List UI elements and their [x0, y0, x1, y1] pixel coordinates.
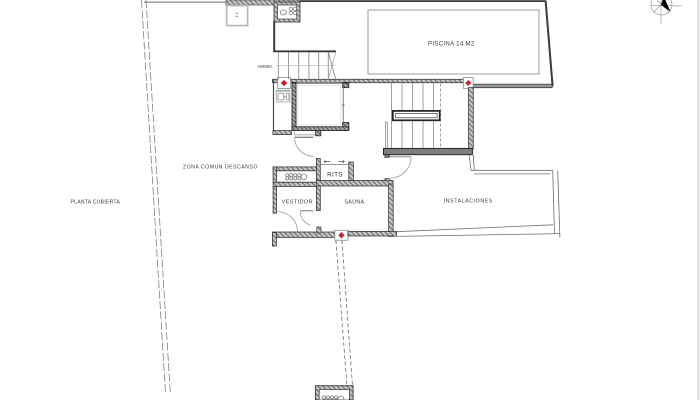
svg-text:INSTALACIONES: INSTALACIONES — [444, 199, 493, 205]
svg-text:SAUNA: SAUNA — [344, 200, 364, 206]
svg-text:ARRIBA: ARRIBA — [257, 64, 273, 69]
svg-text:ZONA COMUN DESCANSO: ZONA COMUN DESCANSO — [183, 165, 258, 171]
svg-text:RITS: RITS — [327, 171, 343, 178]
svg-text:PLANTA CUBIERTA: PLANTA CUBIERTA — [71, 199, 121, 205]
svg-text:PISCINA 14 M2: PISCINA 14 M2 — [428, 40, 475, 47]
svg-text:VESTIDOR: VESTIDOR — [282, 200, 313, 206]
